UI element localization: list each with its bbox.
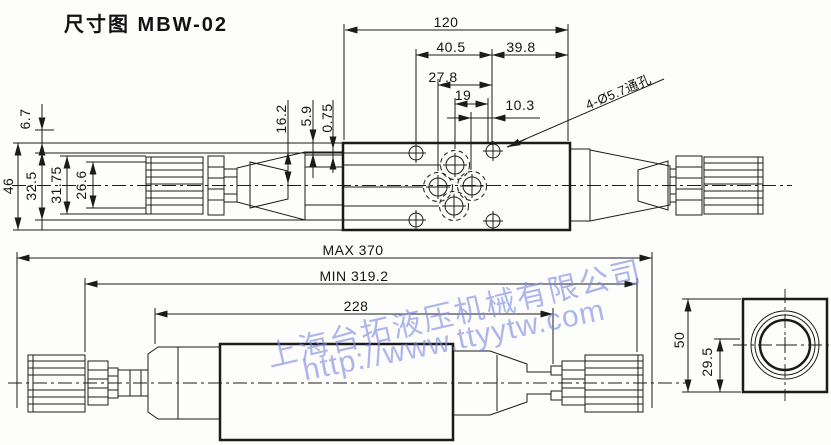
drawing-sheet: 尺寸图 MBW-02 120 40.5 39.8 27.8 19 10.3 4-… <box>0 0 831 445</box>
dim-39-8-label: 39.8 <box>506 39 535 55</box>
dim-120-label: 120 <box>434 14 459 30</box>
dim-19-label: 19 <box>455 87 472 103</box>
drawing-canvas <box>0 0 831 445</box>
dim-16-2-label: 16.2 <box>273 104 289 133</box>
dim-5-9-label: 5.9 <box>298 106 314 127</box>
dim-min-319-2-label: MIN 319.2 <box>319 268 388 284</box>
dim-31-75-label: 31.75 <box>48 166 64 204</box>
end-view <box>682 289 831 401</box>
dim-26-6-label: 26.6 <box>73 170 89 199</box>
dim-6-7-label: 6.7 <box>17 109 33 130</box>
dim-0-75-label: 0.75 <box>319 103 335 132</box>
dim-50-label: 50 <box>671 332 687 349</box>
top-view <box>12 24 792 231</box>
dim-29-5-label: 29.5 <box>699 347 715 376</box>
dim-46-label: 46 <box>0 178 16 195</box>
dim-10-3-label: 10.3 <box>505 97 534 113</box>
drawing-title: 尺寸图 MBW-02 <box>64 8 228 37</box>
dim-32-5-label: 32.5 <box>23 171 39 200</box>
dim-27-8-label: 27.8 <box>428 69 457 85</box>
dim-40-5-label: 40.5 <box>436 39 465 55</box>
dim-max-370-label: MAX 370 <box>322 242 383 258</box>
